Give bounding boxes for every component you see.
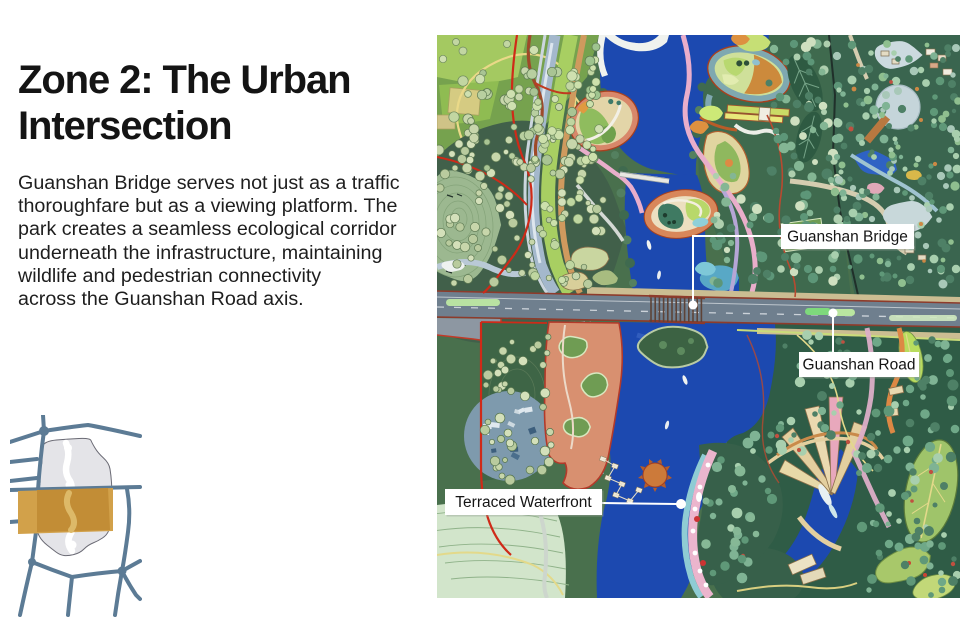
svg-text:Guanshan Bridge: Guanshan Bridge — [787, 229, 908, 246]
svg-text:Guanshan Road: Guanshan Road — [803, 357, 916, 374]
svg-text:Terraced Waterfront: Terraced Waterfront — [455, 494, 592, 511]
